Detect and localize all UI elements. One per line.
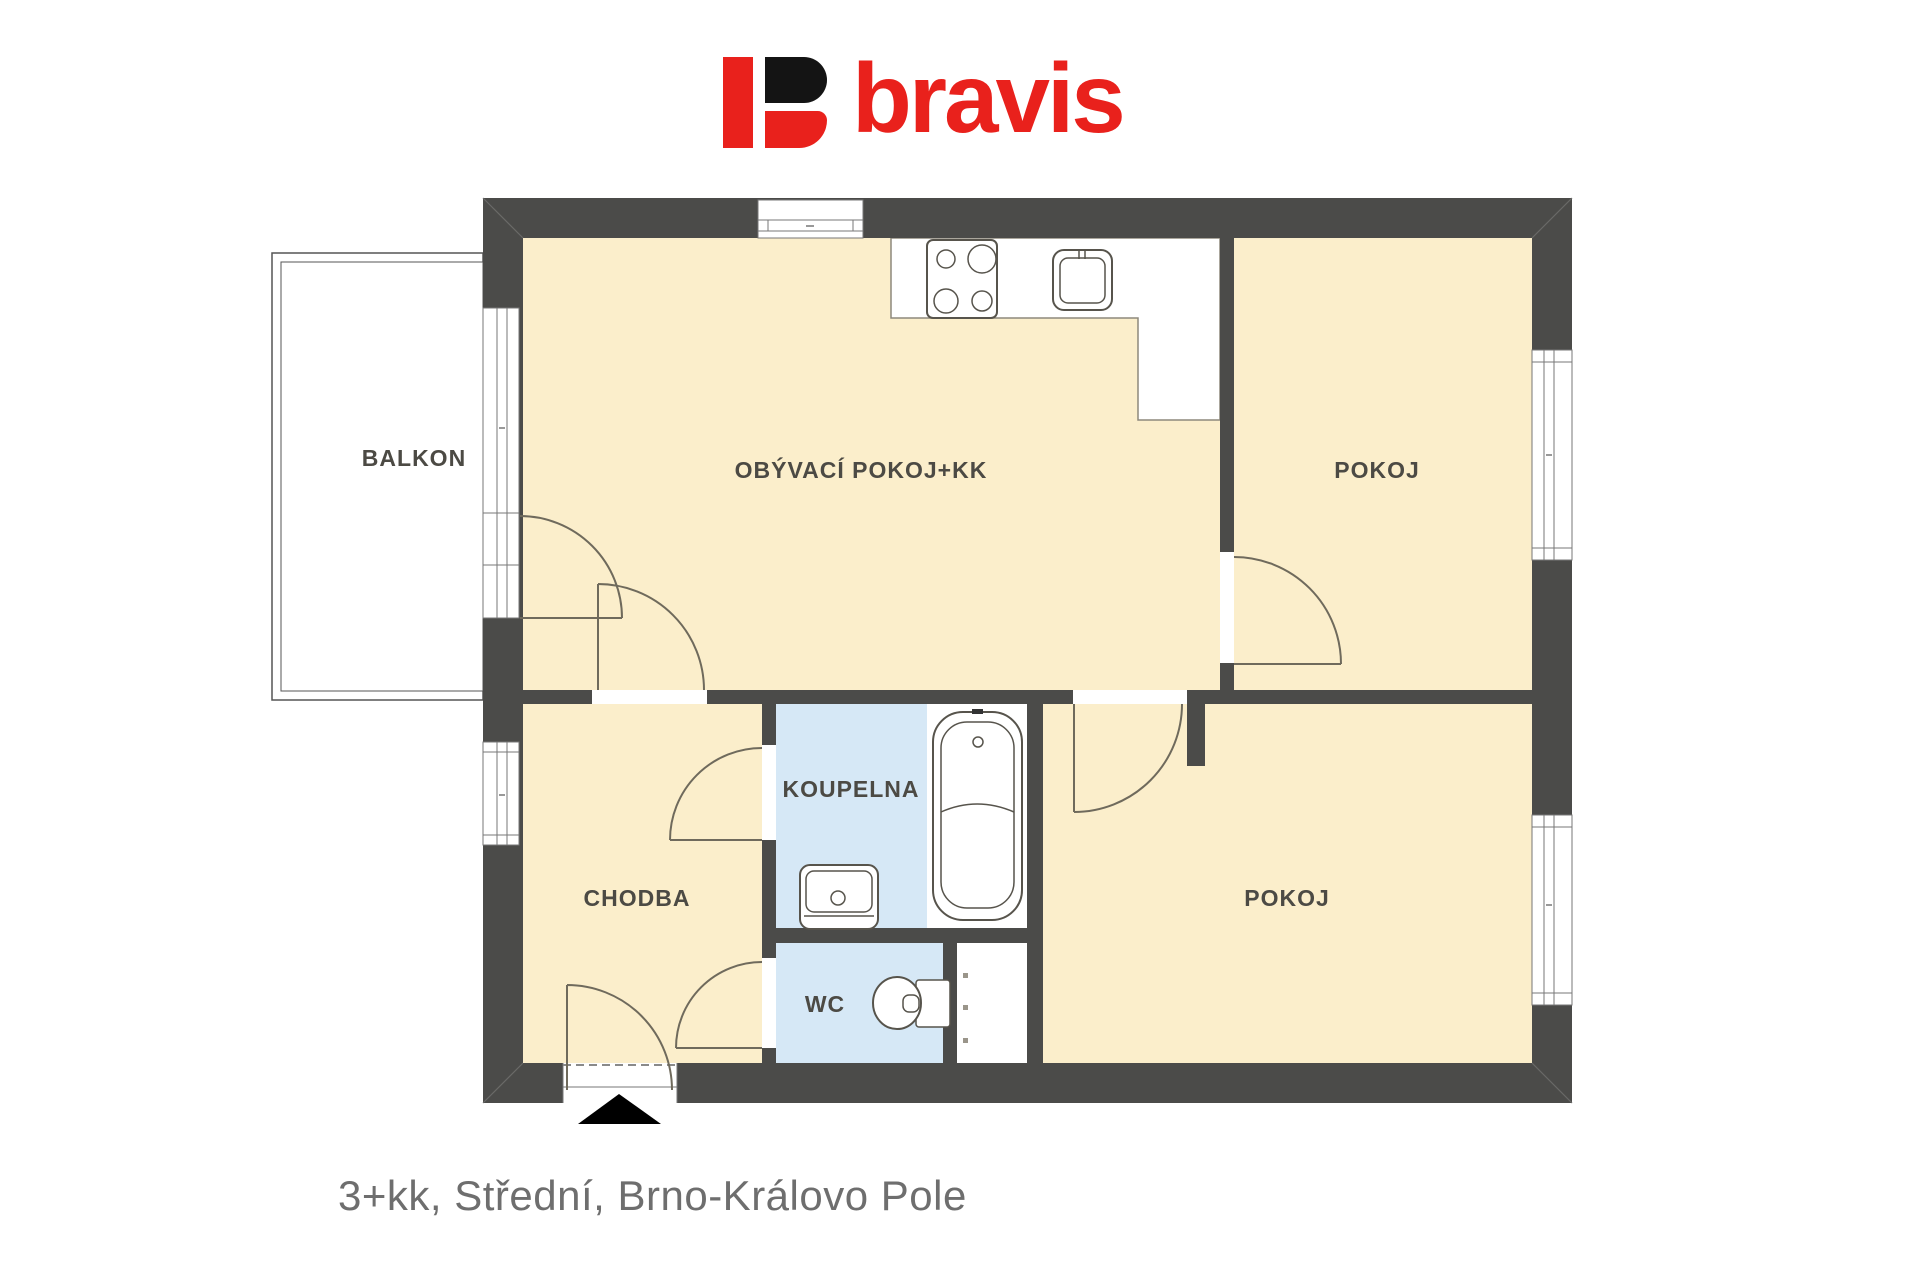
room-chodba <box>523 704 762 1063</box>
room-label-pokoj-bottom: POKOJ <box>1244 885 1330 911</box>
toilet-icon <box>873 977 950 1029</box>
room-label-pokoj-top: POKOJ <box>1334 457 1420 483</box>
room-label-chodba: CHODBA <box>584 885 691 911</box>
room-label-living: OBÝVACÍ POKOJ+KK <box>735 456 988 483</box>
room-label-wc: WC <box>805 991 845 1017</box>
room-label-balkon: BALKON <box>362 445 466 471</box>
window-pokoj-bottom <box>1532 815 1572 1005</box>
listing-caption: 3+kk, Střední, Brno-Královo Pole <box>338 1172 967 1220</box>
window-pokoj-top <box>1532 350 1572 560</box>
stove-icon <box>927 240 997 318</box>
window-chodba <box>483 742 519 845</box>
kitchen-sink-icon <box>1053 250 1112 310</box>
washbasin-icon <box>800 865 878 929</box>
floor-plan: BALKON OBÝVACÍ POKOJ+KK POKOJ KOUPELNA C… <box>0 0 1920 1276</box>
room-pokoj-bottom <box>1043 704 1532 1063</box>
window-kitchen <box>758 200 863 238</box>
window-balcony-door <box>483 308 519 618</box>
installation-shaft <box>957 943 1027 1063</box>
balcony-outline <box>272 253 483 700</box>
room-label-koupelna: KOUPELNA <box>782 776 919 802</box>
bathtub-icon <box>933 709 1022 920</box>
